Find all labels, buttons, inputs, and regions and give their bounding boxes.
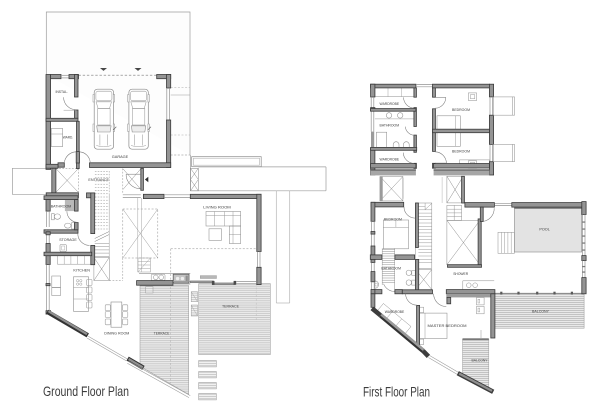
svg-text:BALCONY: BALCONY (532, 310, 550, 314)
svg-text:DINING ROOM: DINING ROOM (104, 332, 129, 336)
svg-text:INSTAL.: INSTAL. (55, 90, 68, 94)
svg-text:Ground Floor Plan: Ground Floor Plan (43, 383, 129, 399)
svg-text:ENTRANCE: ENTRANCE (88, 178, 109, 182)
svg-text:BEDROOM: BEDROOM (452, 150, 470, 154)
svg-text:WARD.: WARD. (63, 135, 74, 139)
svg-text:First Floor Plan: First Floor Plan (363, 384, 430, 400)
svg-text:WARDROBE: WARDROBE (380, 102, 400, 106)
svg-text:BEDROOM: BEDROOM (452, 108, 470, 112)
svg-text:BATHROOM: BATHROOM (380, 123, 400, 127)
svg-text:TERRACE: TERRACE (222, 305, 240, 309)
svg-text:POOL: POOL (539, 228, 550, 232)
svg-text:SHOWER: SHOWER (453, 272, 469, 276)
svg-text:LIVING ROOM: LIVING ROOM (203, 205, 231, 209)
svg-text:BEDROOM: BEDROOM (384, 217, 402, 221)
svg-text:BATHROOM: BATHROOM (51, 204, 72, 208)
svg-text:WARDROBE: WARDROBE (380, 157, 400, 161)
svg-text:TERRACE: TERRACE (154, 332, 170, 336)
svg-text:KITCHEN: KITCHEN (73, 268, 90, 272)
svg-text:BATHROOM: BATHROOM (381, 267, 401, 271)
svg-text:WARDROBE: WARDROBE (385, 310, 405, 314)
svg-text:MASTER BEDROOM: MASTER BEDROOM (428, 324, 467, 328)
svg-text:BALCONY: BALCONY (472, 359, 489, 363)
svg-text:GARAGE: GARAGE (112, 155, 129, 159)
svg-text:STORAGE: STORAGE (59, 238, 77, 242)
